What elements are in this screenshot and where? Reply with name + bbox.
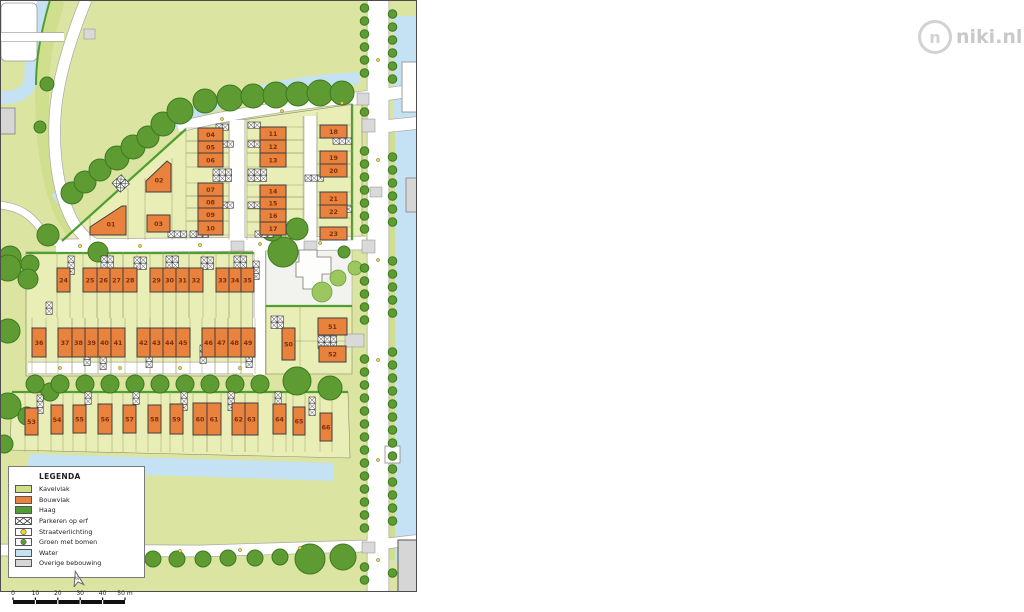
tree-icon	[268, 237, 298, 267]
legend-item: Overige bebouwing	[15, 558, 138, 569]
existing-lot	[1, 3, 37, 61]
tree-icon	[388, 309, 397, 318]
tree-icon	[388, 348, 397, 357]
tree-icon	[360, 303, 369, 312]
plot-number: 48	[230, 340, 239, 347]
plot-43[interactable]: 43	[150, 328, 163, 357]
plot-14[interactable]: 14	[260, 185, 286, 197]
building	[0, 108, 15, 134]
legend-swatch-fill-icon	[15, 485, 32, 493]
plot-number: 66	[322, 424, 331, 431]
building	[406, 178, 417, 212]
tree-icon	[26, 375, 44, 393]
tree-icon	[360, 576, 369, 585]
plot-number: 37	[61, 340, 70, 347]
tree-icon	[360, 225, 369, 234]
plot-09[interactable]: 09	[198, 208, 223, 221]
plot-number: 29	[152, 277, 161, 284]
plot-number: 03	[154, 221, 163, 228]
plot-22[interactable]: 22	[320, 205, 347, 218]
tree-icon	[195, 551, 211, 567]
crossing	[357, 93, 369, 105]
plot-number: 60	[196, 416, 205, 423]
tree-icon	[360, 472, 369, 481]
plot-15[interactable]: 15	[260, 197, 286, 209]
legend-swatch-tree-icon	[15, 538, 32, 546]
plot-26[interactable]: 26	[97, 268, 110, 292]
tree-icon	[220, 550, 236, 566]
plot-number: 02	[155, 177, 164, 184]
plot-number: 39	[87, 340, 96, 347]
plot-52[interactable]: 52	[319, 346, 346, 362]
tree-icon	[360, 316, 369, 325]
crossing	[231, 241, 244, 251]
tree-icon	[360, 277, 369, 286]
parking-icon	[248, 169, 267, 181]
tree-icon	[360, 355, 369, 364]
plot-number: 08	[206, 199, 215, 206]
tree-icon	[360, 446, 369, 455]
legend-item: Water	[15, 548, 138, 559]
crossing	[84, 29, 95, 39]
parking-icon	[168, 231, 187, 237]
tree-icon	[388, 270, 397, 279]
legend: LEGENDA KavelvlakBouwvlakHaagParkeren op…	[8, 466, 145, 578]
plot-number: 12	[269, 144, 278, 151]
street-light-icon	[340, 101, 343, 104]
legend-title: LEGENDA	[39, 472, 138, 481]
plot-44[interactable]: 44	[163, 328, 176, 357]
legend-item: Straatverlichting	[15, 526, 138, 537]
plot-35[interactable]: 35	[241, 268, 254, 292]
legend-items: KavelvlakBouwvlakHaagParkeren op erfStra…	[15, 484, 138, 569]
tree-icon	[226, 375, 244, 393]
street-light-icon	[238, 366, 241, 369]
plot-29[interactable]: 29	[150, 268, 163, 292]
north-arrow: N	[15, 570, 138, 591]
plot-13[interactable]: 13	[260, 153, 286, 167]
plot-46[interactable]: 46	[202, 328, 215, 357]
street-light-icon	[280, 109, 283, 112]
legend-item: Haag	[15, 505, 138, 516]
tree-icon	[388, 478, 397, 487]
plot-38[interactable]: 38	[72, 328, 85, 357]
plot-number: 62	[234, 416, 243, 423]
street-light-icon	[258, 242, 261, 245]
tree-icon	[338, 246, 350, 258]
tree-icon	[388, 569, 397, 578]
tree-icon	[388, 75, 397, 84]
plot-number: 57	[125, 416, 134, 423]
page: 0102030405060708091011121314151617181920…	[0, 0, 1024, 612]
tree-icon	[388, 23, 397, 32]
plot-53[interactable]: 53	[25, 408, 38, 435]
street-light-icon	[376, 258, 379, 261]
tree-icon	[286, 218, 308, 240]
street-light-icon	[220, 117, 223, 120]
crossing	[362, 240, 375, 253]
tree-icon	[101, 375, 119, 393]
tree-icon	[18, 269, 38, 289]
tree-icon	[360, 212, 369, 221]
legend-item-label: Haag	[39, 506, 56, 514]
plot-16[interactable]: 16	[260, 209, 286, 222]
tree-icon	[388, 465, 397, 474]
tree-icon	[167, 98, 193, 124]
parking-icon	[46, 302, 52, 314]
street-light-icon	[376, 58, 379, 61]
plot-number: 07	[206, 187, 215, 194]
legend-item: Kavelvlak	[15, 484, 138, 495]
tree-icon	[360, 485, 369, 494]
street-light-icon	[376, 158, 379, 161]
tree-icon	[388, 491, 397, 500]
street-light-icon	[298, 546, 301, 549]
plot-number: 52	[328, 351, 337, 358]
tree-icon	[388, 36, 397, 45]
tree-icon	[40, 77, 54, 91]
legend-item-label: Groen met bomen	[39, 538, 97, 546]
street-light-icon	[376, 358, 379, 361]
plot-number: 24	[59, 277, 68, 284]
street-light-icon	[138, 244, 141, 247]
plot-number: 64	[275, 416, 284, 423]
tree-icon	[145, 551, 161, 567]
plot-number: 16	[269, 213, 278, 220]
tree-icon	[388, 166, 397, 175]
plot-number: 04	[206, 132, 215, 139]
tree-icon	[360, 394, 369, 403]
niki-logo[interactable]: n niki.nl	[918, 20, 1022, 54]
parking-icon	[333, 138, 352, 144]
plot-40[interactable]: 40	[98, 328, 111, 357]
plot-66[interactable]: 66	[320, 413, 332, 441]
scale-bar: 01020304050 m	[10, 590, 140, 607]
plot-number: 58	[150, 416, 159, 423]
plot-28[interactable]: 28	[123, 268, 137, 292]
legend-swatch-light-icon	[15, 528, 32, 536]
tree-icon	[272, 549, 288, 565]
plot-number: 13	[269, 157, 278, 164]
plot-31[interactable]: 31	[176, 268, 189, 292]
tree-icon	[388, 179, 397, 188]
scale-label: 40	[99, 590, 107, 597]
tree-icon	[330, 544, 356, 570]
tree-icon	[388, 426, 397, 435]
tree-icon	[169, 551, 185, 567]
legend-item-label: Parkeren op erf	[39, 517, 88, 525]
parking-icon	[234, 256, 246, 268]
tree-icon	[360, 147, 369, 156]
plot-20[interactable]: 20	[320, 164, 347, 177]
tree-icon	[360, 264, 369, 273]
tree-icon	[360, 524, 369, 533]
tree-icon	[307, 80, 333, 106]
legend-item: Groen met bomen	[15, 537, 138, 548]
tree-icon	[388, 400, 397, 409]
plot-58[interactable]: 58	[148, 405, 161, 433]
tree-icon	[388, 153, 397, 162]
plot-39[interactable]: 39	[85, 328, 98, 357]
scale-label: 20	[54, 590, 62, 597]
plot-50[interactable]: 50	[282, 328, 295, 360]
plot-number: 34	[231, 277, 240, 284]
parking-icon	[85, 392, 91, 404]
niki-logo-icon: n	[918, 20, 952, 54]
tree-icon	[360, 108, 369, 117]
tree-icon	[37, 224, 59, 246]
plot-number: 05	[206, 144, 215, 151]
plot-number: 40	[100, 340, 109, 347]
tree-icon	[360, 69, 369, 78]
plot-number: 55	[75, 416, 84, 423]
plot-34[interactable]: 34	[229, 268, 241, 292]
plot-number: 63	[247, 416, 256, 423]
street-light-icon	[78, 244, 81, 247]
crossing	[362, 119, 375, 132]
plot-number: 45	[179, 340, 188, 347]
legend-swatch-fill-icon	[15, 549, 32, 557]
plot-number: 41	[114, 340, 123, 347]
plot-number: 18	[329, 129, 338, 136]
tree-icon	[360, 186, 369, 195]
plot-60[interactable]: 60	[193, 403, 207, 435]
plot-04[interactable]: 04	[198, 128, 223, 141]
tree-icon	[247, 550, 263, 566]
plot-25[interactable]: 25	[83, 268, 97, 292]
tree-icon	[263, 82, 289, 108]
plot-30[interactable]: 30	[163, 268, 176, 292]
plot-06[interactable]: 06	[198, 153, 223, 167]
tree-icon	[312, 282, 332, 302]
niki-logo-monogram: n	[929, 28, 940, 47]
tree-icon	[388, 387, 397, 396]
tree-icon	[0, 319, 20, 343]
crossing	[304, 241, 317, 251]
plot-27[interactable]: 27	[110, 268, 123, 292]
plot-number: 65	[295, 418, 304, 425]
plot-number: 10	[206, 225, 215, 232]
tree-icon	[360, 420, 369, 429]
legend-swatch-fill-icon	[15, 559, 32, 567]
tree-icon	[176, 375, 194, 393]
legend-swatch-parking-icon	[15, 517, 32, 525]
plot-number: 17	[269, 226, 278, 233]
plot-23[interactable]: 23	[320, 227, 347, 240]
tree-icon	[360, 4, 369, 13]
plot-37[interactable]: 37	[58, 328, 72, 357]
plot-number: 26	[99, 277, 108, 284]
plot-17[interactable]: 17	[260, 222, 286, 235]
plot-54[interactable]: 54	[51, 405, 63, 434]
plot-21[interactable]: 21	[320, 192, 347, 205]
parking-icon	[101, 256, 113, 268]
legend-item-label: Kavelvlak	[39, 485, 70, 493]
tree-icon	[286, 82, 310, 106]
plot-33[interactable]: 33	[216, 268, 229, 292]
tree-icon	[360, 381, 369, 390]
legend-swatch-fill-icon	[15, 506, 32, 514]
tree-icon	[388, 361, 397, 370]
tree-icon	[360, 30, 369, 39]
tree-icon	[388, 439, 397, 448]
tree-icon	[126, 375, 144, 393]
tree-icon	[201, 375, 219, 393]
tree-icon	[388, 452, 397, 461]
tree-icon	[251, 375, 269, 393]
tree-icon	[388, 517, 397, 526]
plot-number: 11	[269, 131, 278, 138]
plot-number: 43	[152, 340, 161, 347]
scale-label: 0	[11, 590, 15, 597]
tree-icon	[360, 563, 369, 572]
plot-61[interactable]: 61	[207, 403, 221, 435]
parking-icon	[133, 392, 139, 404]
plot-03[interactable]: 03	[147, 215, 170, 232]
tree-icon	[388, 10, 397, 19]
tree-icon	[330, 270, 346, 286]
street-light-icon	[118, 366, 121, 369]
plot-number: 47	[217, 340, 226, 347]
plot-number: 22	[329, 209, 338, 216]
plot-56[interactable]: 56	[98, 404, 112, 434]
legend-item-label: Overige bebouwing	[39, 559, 101, 567]
plot-08[interactable]: 08	[198, 196, 223, 208]
scale-label: 50 m	[117, 590, 132, 597]
plot-number: 21	[329, 196, 338, 203]
tree-icon	[51, 375, 69, 393]
plot-57[interactable]: 57	[123, 405, 136, 433]
tree-icon	[318, 376, 342, 400]
street-light-icon	[318, 241, 321, 244]
tree-icon	[388, 62, 397, 71]
tree-icon	[76, 375, 94, 393]
plot-59[interactable]: 59	[170, 404, 183, 434]
plot-number: 51	[328, 324, 337, 331]
plot-41[interactable]: 41	[111, 328, 125, 357]
tree-icon	[217, 85, 243, 111]
plot-65[interactable]: 65	[293, 407, 305, 435]
parking-icon	[248, 202, 260, 208]
plot-number: 56	[101, 416, 110, 423]
plot-number: 23	[329, 231, 338, 238]
tree-icon	[360, 56, 369, 65]
tree-icon	[360, 290, 369, 299]
plot-number: 33	[218, 277, 227, 284]
crossing	[370, 187, 382, 197]
plot-32[interactable]: 32	[189, 268, 203, 292]
plot-42[interactable]: 42	[137, 328, 150, 357]
plot-48[interactable]: 48	[228, 328, 241, 357]
plot-24[interactable]: 24	[57, 268, 70, 292]
tree-icon	[360, 160, 369, 169]
plot-number: 49	[244, 340, 253, 347]
plot-number: 35	[243, 277, 252, 284]
tree-icon	[360, 199, 369, 208]
street-light-icon	[376, 558, 379, 561]
tree-icon	[193, 89, 217, 113]
tree-icon	[388, 374, 397, 383]
plot-36[interactable]: 36	[32, 328, 46, 357]
street-light-icon	[198, 243, 201, 246]
tree-icon	[241, 84, 265, 108]
plot-55[interactable]: 55	[73, 405, 86, 433]
plot-11[interactable]: 11	[260, 127, 286, 140]
niki-logo-text: niki.nl	[956, 26, 1022, 48]
plot-number: 31	[178, 277, 187, 284]
tree-icon	[360, 511, 369, 520]
plot-number: 59	[172, 416, 181, 423]
scale-labels: 01020304050 m	[10, 590, 140, 597]
building	[402, 62, 417, 112]
legend-item: Parkeren op erf	[15, 516, 138, 527]
tree-icon	[283, 367, 311, 395]
plot-number: 25	[86, 277, 95, 284]
tree-icon	[388, 218, 397, 227]
tree-icon	[388, 257, 397, 266]
plot-number: 50	[284, 341, 293, 348]
crossing	[345, 334, 364, 347]
plot-63[interactable]: 63	[245, 403, 258, 435]
plot-number: 38	[74, 340, 83, 347]
plot-number: 14	[269, 188, 278, 195]
legend-swatch-fill-icon	[15, 496, 32, 504]
plot-number: 15	[269, 200, 278, 207]
plot-47[interactable]: 47	[215, 328, 228, 357]
plot-12[interactable]: 12	[260, 140, 286, 153]
plot-18[interactable]: 18	[320, 125, 347, 138]
plot-10[interactable]: 10	[198, 221, 223, 235]
plot-45[interactable]: 45	[176, 328, 190, 357]
plot-49[interactable]: 49	[241, 328, 255, 357]
tree-icon	[388, 49, 397, 58]
plot-number: 19	[329, 155, 338, 162]
crossing	[362, 542, 375, 553]
street-light-icon	[58, 366, 61, 369]
plot-number: 32	[192, 277, 201, 284]
street-light-icon	[178, 366, 181, 369]
tree-icon	[360, 368, 369, 377]
parking-icon	[248, 122, 260, 128]
street-light-icon	[238, 548, 241, 551]
tree-icon	[388, 413, 397, 422]
plot-62[interactable]: 62	[232, 403, 245, 435]
plot-number: 61	[210, 416, 219, 423]
tree-icon	[360, 43, 369, 52]
tree-icon	[360, 433, 369, 442]
plot-number: 53	[27, 419, 36, 426]
plot-64[interactable]: 64	[273, 404, 286, 434]
tree-icon	[388, 504, 397, 513]
plot-number: 46	[204, 340, 213, 347]
plot-05[interactable]: 05	[198, 141, 223, 153]
street-light-icon	[178, 549, 181, 552]
tree-icon	[151, 375, 169, 393]
plot-number: 42	[139, 340, 148, 347]
tree-icon	[388, 283, 397, 292]
plot-07[interactable]: 07	[198, 183, 223, 196]
scale-label: 30	[76, 590, 84, 597]
tree-icon	[360, 459, 369, 468]
plot-number: 20	[329, 168, 338, 175]
tree-icon	[360, 407, 369, 416]
plot-number: 01	[107, 221, 116, 228]
legend-item: Bouwvlak	[15, 495, 138, 506]
plot-51[interactable]: 51	[318, 318, 347, 335]
tree-icon	[360, 173, 369, 182]
plot-19[interactable]: 19	[320, 151, 347, 164]
tree-icon	[388, 192, 397, 201]
